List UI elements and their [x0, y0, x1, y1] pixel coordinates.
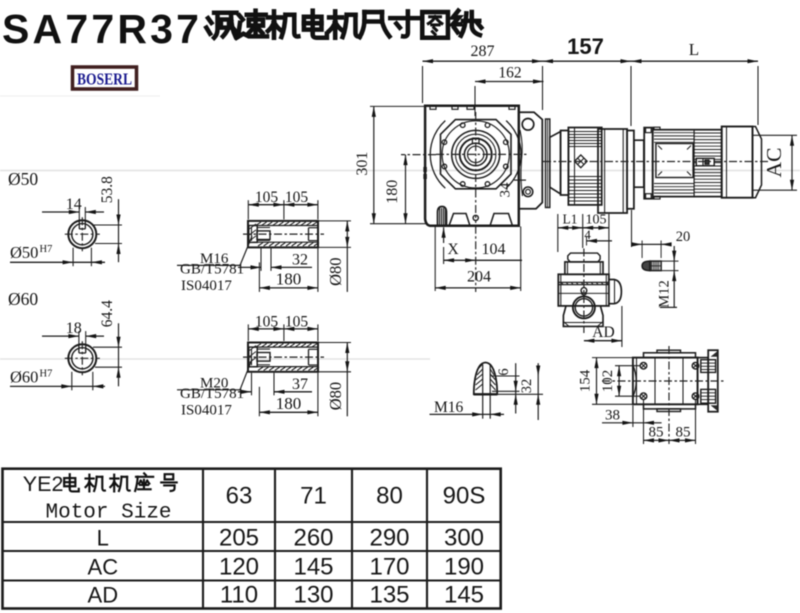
- svg-text:20: 20: [676, 229, 691, 245]
- svg-text:190: 190: [444, 554, 484, 581]
- svg-text:80: 80: [376, 483, 403, 510]
- svg-text:90S: 90S: [443, 483, 486, 510]
- svg-text:Ø60: Ø60: [8, 289, 38, 309]
- svg-text:301: 301: [354, 152, 371, 176]
- svg-text:H7: H7: [40, 244, 53, 255]
- svg-text:M16: M16: [434, 399, 464, 416]
- svg-text:18: 18: [66, 320, 82, 337]
- svg-text:Ø80: Ø80: [326, 382, 345, 410]
- svg-text:AD: AD: [592, 324, 614, 341]
- svg-text:135: 135: [369, 582, 409, 609]
- svg-text:300: 300: [444, 525, 484, 552]
- svg-text:32: 32: [292, 251, 308, 268]
- svg-text:34: 34: [498, 182, 514, 198]
- svg-text:14: 14: [66, 196, 82, 213]
- svg-text:L: L: [689, 40, 699, 59]
- svg-text:71: 71: [300, 483, 327, 510]
- svg-text:L: L: [97, 526, 109, 551]
- svg-text:205: 205: [219, 525, 259, 552]
- svg-text:GB/T5781: GB/T5781: [180, 261, 244, 277]
- svg-text:104: 104: [482, 241, 506, 258]
- svg-text:154: 154: [578, 369, 594, 392]
- svg-text:BOSERL: BOSERL: [77, 70, 132, 89]
- svg-text:145: 145: [293, 554, 333, 581]
- svg-text:85: 85: [649, 425, 664, 441]
- svg-text:170: 170: [369, 554, 409, 581]
- svg-text:180: 180: [384, 180, 401, 204]
- svg-text:AD: AD: [88, 583, 119, 608]
- svg-text:YE2: YE2: [23, 472, 64, 496]
- svg-text:Ø80: Ø80: [326, 257, 345, 285]
- svg-text:H7: H7: [40, 368, 53, 379]
- svg-text:287: 287: [471, 43, 495, 60]
- svg-text:105: 105: [285, 313, 309, 330]
- svg-text:105: 105: [255, 189, 279, 206]
- svg-text:L1: L1: [563, 212, 578, 227]
- svg-text:Ø50: Ø50: [8, 169, 38, 189]
- svg-text:85: 85: [676, 425, 691, 441]
- svg-text:Ø50: Ø50: [10, 243, 38, 262]
- svg-text:105: 105: [255, 313, 279, 330]
- svg-text:4: 4: [584, 227, 591, 242]
- svg-text:105: 105: [285, 189, 309, 206]
- svg-text:157: 157: [567, 34, 604, 59]
- svg-text:130: 130: [293, 582, 333, 609]
- svg-text:145: 145: [444, 582, 484, 609]
- svg-text:AC: AC: [88, 555, 119, 580]
- svg-text:180: 180: [276, 394, 302, 413]
- svg-text:AC: AC: [762, 148, 786, 178]
- svg-text:SA77R37: SA77R37: [2, 6, 202, 52]
- svg-text:32: 32: [519, 379, 535, 394]
- svg-text:Ø60: Ø60: [10, 367, 38, 386]
- svg-text:X: X: [448, 241, 459, 258]
- svg-text:180: 180: [276, 269, 302, 288]
- svg-text:110: 110: [220, 582, 258, 609]
- svg-text:290: 290: [369, 525, 409, 552]
- svg-text:37: 37: [292, 376, 308, 393]
- svg-text:38: 38: [605, 408, 620, 424]
- svg-text:63: 63: [226, 483, 253, 510]
- svg-text:260: 260: [293, 525, 333, 552]
- svg-text:6: 6: [496, 368, 512, 375]
- svg-text:105: 105: [586, 213, 607, 228]
- svg-text:Motor Size: Motor Size: [46, 502, 172, 525]
- svg-text:GB/T5781: GB/T5781: [180, 386, 244, 402]
- svg-text:53.8: 53.8: [99, 176, 116, 203]
- svg-text:102: 102: [600, 370, 616, 393]
- svg-text:M12: M12: [657, 280, 673, 307]
- svg-text:162: 162: [498, 65, 521, 82]
- svg-text:IS04017: IS04017: [181, 278, 232, 294]
- svg-text:204: 204: [467, 269, 491, 286]
- svg-text:120: 120: [219, 554, 259, 581]
- svg-text:IS04017: IS04017: [181, 402, 232, 418]
- svg-text:64.4: 64.4: [99, 300, 116, 327]
